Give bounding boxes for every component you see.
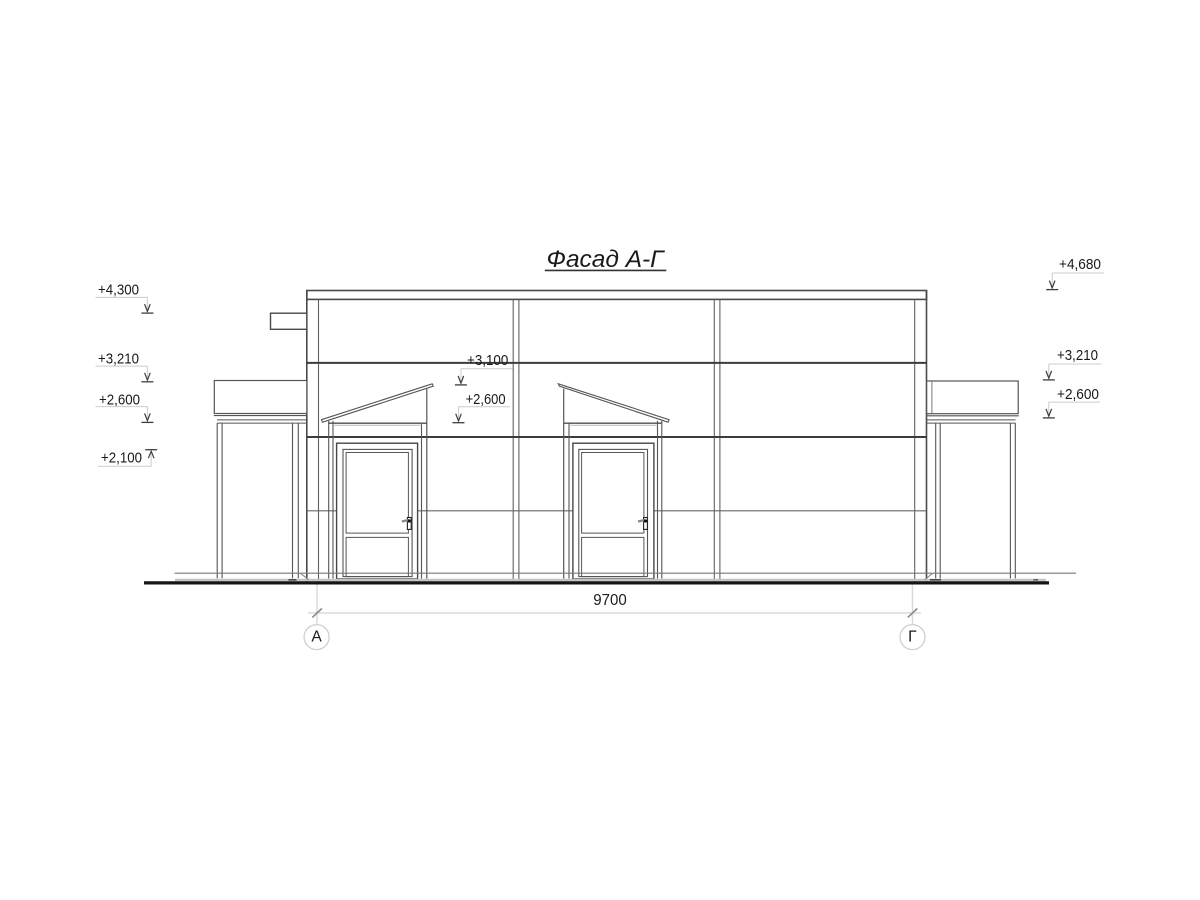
svg-text:Фасад А-Г: Фасад А-Г — [547, 246, 666, 273]
svg-text:+2,600: +2,600 — [99, 392, 140, 408]
svg-text:+3,210: +3,210 — [98, 351, 139, 367]
svg-text:+3,210: +3,210 — [1057, 348, 1098, 364]
svg-text:+4,680: +4,680 — [1059, 257, 1101, 273]
svg-text:Г: Г — [908, 629, 917, 646]
svg-text:+2,600: +2,600 — [466, 392, 506, 408]
svg-text:+2,600: +2,600 — [1057, 387, 1099, 403]
svg-text:+4,300: +4,300 — [98, 283, 139, 299]
svg-text:+3,100: +3,100 — [467, 353, 508, 369]
svg-text:9700: 9700 — [593, 592, 627, 609]
svg-text:+2,100: +2,100 — [101, 451, 142, 467]
svg-text:А: А — [311, 629, 322, 646]
